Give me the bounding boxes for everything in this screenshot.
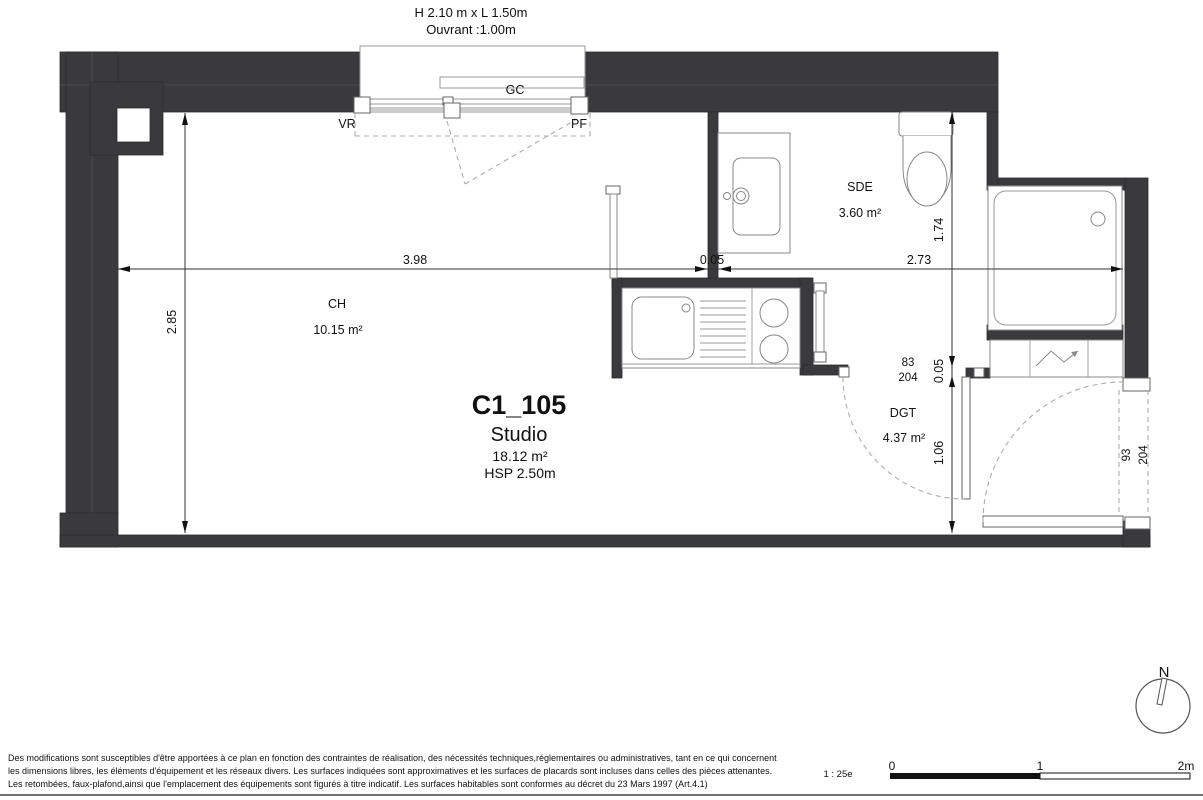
door83-leaf bbox=[962, 377, 970, 499]
disclaimer-line3: Les retombées, faux-plafond,ainsi que l'… bbox=[8, 779, 708, 789]
kitchenette bbox=[622, 283, 826, 368]
shower-tray bbox=[988, 186, 1122, 330]
footer: 1 : 25e 0 1 2m Des modifications sont su… bbox=[0, 753, 1203, 795]
partition-end-cap bbox=[606, 186, 620, 194]
scalebar-tick-2m: 2m bbox=[1178, 759, 1195, 773]
walls bbox=[60, 52, 1150, 547]
door83-width-label: 83 bbox=[902, 357, 915, 369]
door83-jamb bbox=[839, 367, 849, 377]
unit-ceiling-height: HSP 2.50m bbox=[484, 465, 555, 481]
shower-drain bbox=[1091, 212, 1105, 226]
scalebar-right-segment bbox=[1040, 773, 1190, 779]
window-assembly: GC VR PF bbox=[338, 46, 590, 184]
wall-kitchen-left bbox=[612, 278, 622, 378]
door83-hinge-cap bbox=[974, 368, 984, 377]
casement-swing-dash bbox=[447, 121, 465, 184]
entrance-door-leaf bbox=[983, 516, 1123, 527]
entrance-height-label: 204 bbox=[1138, 445, 1150, 465]
dim-wall-v: 0.05 bbox=[932, 359, 946, 383]
wall-bottom bbox=[60, 535, 1150, 547]
window-gc-label: GC bbox=[506, 83, 525, 97]
entrance-width-label: 93 bbox=[1121, 449, 1133, 462]
disclaimer-line1: Des modifications sont susceptibles d'êt… bbox=[8, 753, 777, 763]
duct-shaft-opening bbox=[117, 108, 150, 142]
dim-arrow bbox=[182, 521, 188, 533]
room-ch-area: 10.15 m² bbox=[313, 323, 362, 337]
wall-right bbox=[1125, 178, 1148, 383]
room-ch-name: CH bbox=[328, 297, 346, 311]
doors bbox=[839, 367, 1150, 529]
north-label: N bbox=[1159, 664, 1170, 681]
window-pf-label: PF bbox=[571, 117, 587, 131]
window-vr-label: VR bbox=[338, 117, 355, 131]
dim-height-dgt: 1.06 bbox=[932, 441, 946, 465]
compass-needle-icon bbox=[1157, 678, 1167, 705]
disclaimer-line2: les dimensions libres, les éléments d'éq… bbox=[8, 766, 772, 776]
casement-swing-dash bbox=[465, 119, 577, 184]
dim-arrow bbox=[949, 356, 955, 367]
closet bbox=[990, 340, 1123, 377]
light-partition bbox=[606, 186, 620, 278]
window-handle-mid bbox=[444, 103, 460, 118]
partition-leaf bbox=[610, 194, 617, 278]
closet-body bbox=[990, 340, 1123, 377]
wall-sde-right-stub bbox=[987, 112, 998, 190]
dim-arrow bbox=[949, 521, 955, 533]
window-jamb-right bbox=[571, 97, 588, 114]
entrance-swing-arc bbox=[983, 382, 1123, 522]
kitchen-side-leaf bbox=[816, 291, 824, 354]
unit-id: C1_105 bbox=[472, 390, 567, 420]
scalebar-tick-1: 1 bbox=[1037, 759, 1044, 773]
wall-top-right bbox=[585, 52, 998, 112]
north-arrow: N bbox=[1136, 664, 1190, 733]
dim-width-main: 3.98 bbox=[403, 253, 427, 267]
entrance-jamb-bottom bbox=[1125, 517, 1150, 529]
door83-height-label: 204 bbox=[898, 372, 918, 384]
toilet-bowl bbox=[907, 152, 947, 206]
dim-height-sde: 1.74 bbox=[932, 218, 946, 242]
dim-height-main: 2.85 bbox=[165, 310, 179, 334]
entrance-jamb-top bbox=[1123, 378, 1150, 391]
scalebar-left-segment bbox=[890, 773, 1040, 779]
window-jamb-left bbox=[354, 97, 370, 113]
floor-plan: GC VR PF bbox=[0, 0, 1203, 800]
room-dgt-area: 4.37 m² bbox=[883, 431, 925, 445]
dim-arrow bbox=[949, 376, 955, 387]
wall-kitchen-top bbox=[612, 278, 810, 288]
unit-area: 18.12 m² bbox=[492, 448, 548, 464]
kitchen-side-cap bbox=[814, 352, 826, 362]
scale-ratio: 1 : 25e bbox=[823, 769, 852, 780]
dim-arrow bbox=[118, 266, 130, 272]
dim-wall-h: 0.05 bbox=[700, 253, 724, 267]
unit-type: Studio bbox=[491, 424, 548, 446]
toilet-tank bbox=[899, 112, 953, 136]
dim-width-right: 2.73 bbox=[907, 253, 931, 267]
wall-kitchen-right bbox=[800, 278, 813, 375]
window-opening-header: Ouvrant :1.00m bbox=[426, 22, 516, 37]
kitchen-counter bbox=[622, 288, 800, 368]
room-sde-area: 3.60 m² bbox=[839, 206, 881, 220]
scalebar-tick-0: 0 bbox=[889, 759, 896, 773]
window-size-header: H 2.10 m x L 1.50m bbox=[415, 5, 528, 20]
room-dgt-name: DGT bbox=[890, 406, 917, 420]
room-sde-name: SDE bbox=[847, 180, 873, 194]
dim-arrow bbox=[182, 113, 188, 125]
